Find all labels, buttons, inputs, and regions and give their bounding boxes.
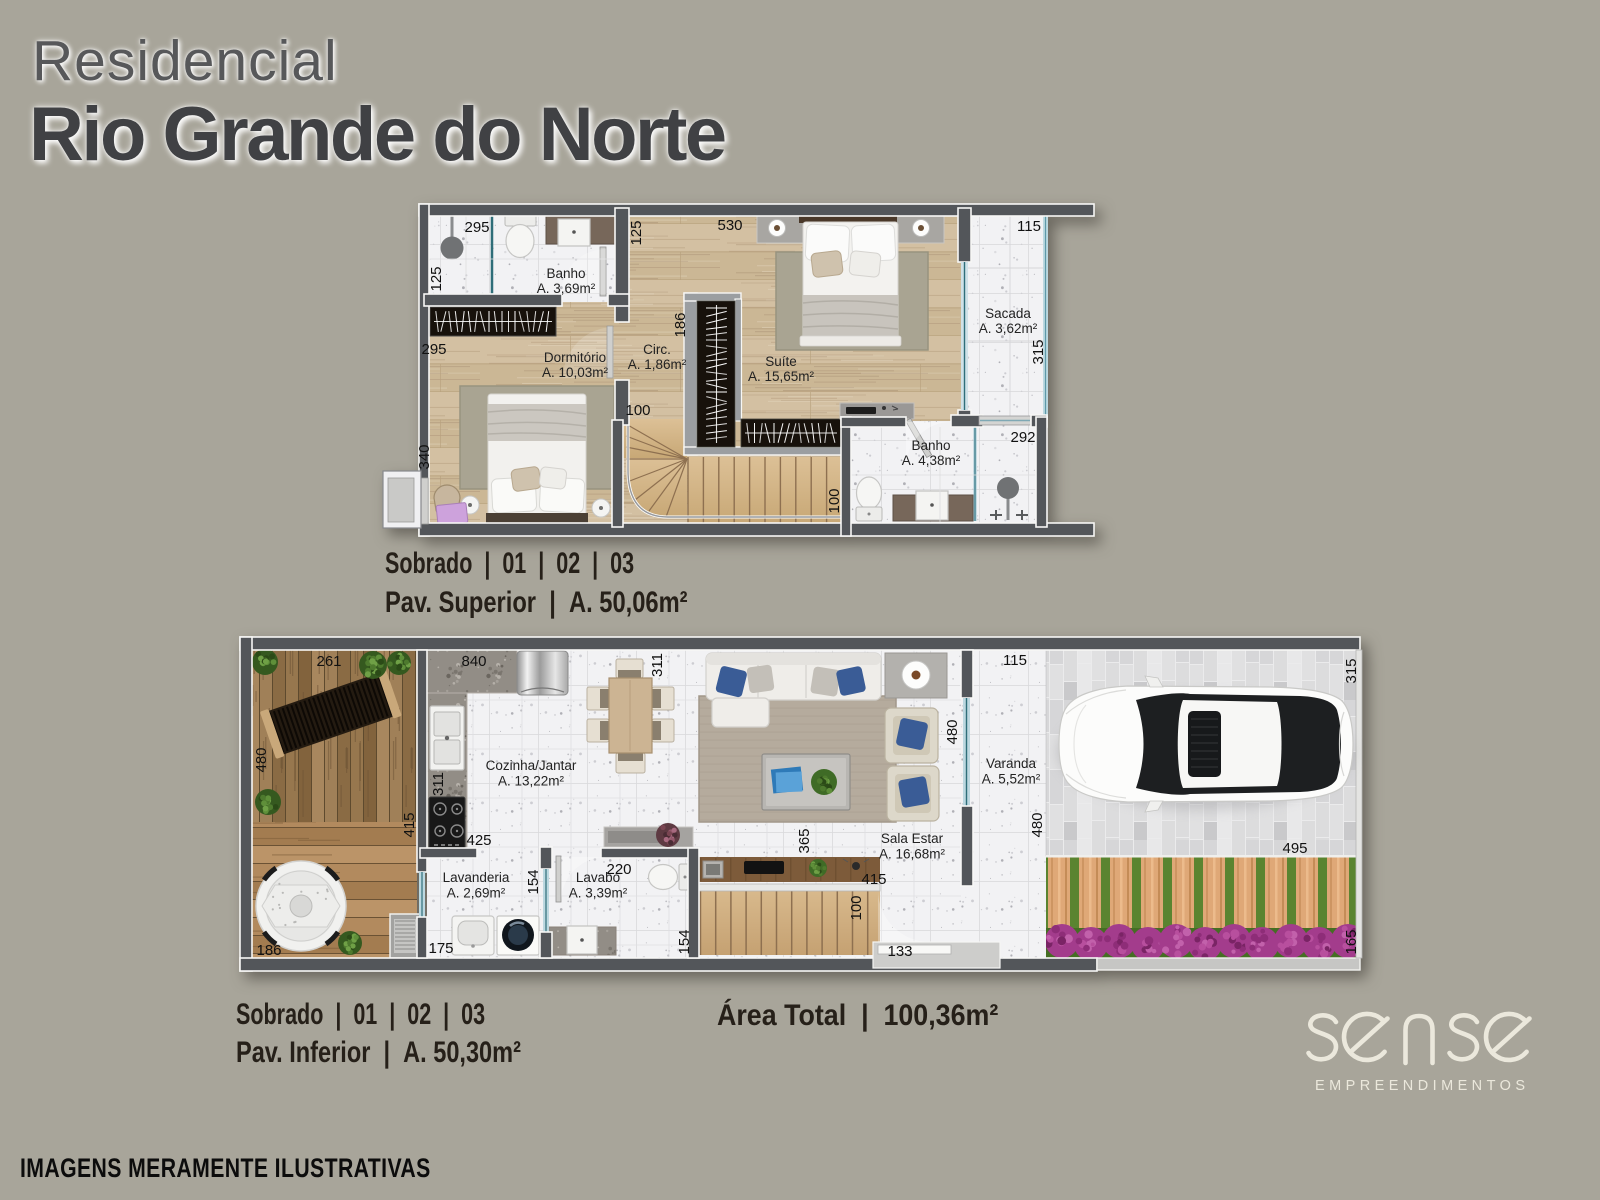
- svg-text:133: 133: [887, 943, 912, 960]
- svg-text:115: 115: [1003, 652, 1027, 669]
- svg-text:A. 3,69m²: A. 3,69m²: [537, 281, 596, 296]
- svg-text:A. 3,39m²: A. 3,39m²: [569, 886, 628, 901]
- svg-text:A. 10,03m²: A. 10,03m²: [542, 365, 609, 380]
- svg-text:100: 100: [826, 488, 843, 513]
- svg-text:Cozinha/Jantar: Cozinha/Jantar: [486, 758, 577, 773]
- svg-text:261: 261: [316, 653, 341, 670]
- svg-text:311: 311: [430, 772, 447, 796]
- svg-text:415: 415: [861, 871, 886, 888]
- svg-text:A. 5,52m²: A. 5,52m²: [982, 772, 1041, 787]
- svg-text:315: 315: [1030, 339, 1047, 364]
- svg-text:Dormitório: Dormitório: [544, 350, 606, 365]
- svg-text:165: 165: [1343, 929, 1360, 954]
- svg-text:840: 840: [461, 653, 486, 670]
- svg-text:480: 480: [253, 747, 270, 772]
- svg-text:480: 480: [1029, 812, 1046, 837]
- svg-text:125: 125: [428, 266, 445, 291]
- svg-text:Banho: Banho: [911, 438, 950, 453]
- svg-text:A. 1,86m²: A. 1,86m²: [628, 357, 687, 372]
- svg-text:Circ.: Circ.: [643, 342, 671, 357]
- svg-text:Sala Estar: Sala Estar: [881, 831, 944, 846]
- svg-text:100: 100: [848, 895, 865, 920]
- svg-text:425: 425: [466, 832, 491, 849]
- svg-text:A. 16,68m²: A. 16,68m²: [879, 847, 946, 862]
- svg-text:186: 186: [672, 312, 689, 337]
- svg-text:365: 365: [796, 828, 813, 853]
- svg-text:Banho: Banho: [546, 266, 585, 281]
- svg-text:415: 415: [401, 812, 418, 837]
- svg-text:100: 100: [625, 402, 650, 419]
- svg-text:Lavabo: Lavabo: [576, 870, 620, 885]
- svg-text:154: 154: [525, 869, 542, 894]
- svg-text:A. 3,62m²: A. 3,62m²: [979, 321, 1038, 336]
- svg-text:295: 295: [421, 341, 446, 358]
- svg-text:295: 295: [464, 219, 489, 236]
- svg-text:A. 13,22m²: A. 13,22m²: [498, 774, 565, 789]
- svg-text:A. 2,69m²: A. 2,69m²: [447, 886, 506, 901]
- svg-text:480: 480: [944, 719, 961, 744]
- svg-text:311: 311: [649, 653, 666, 677]
- svg-text:154: 154: [676, 929, 693, 954]
- svg-text:186: 186: [256, 942, 281, 959]
- svg-text:EMPREENDIMENTOS: EMPREENDIMENTOS: [1315, 1078, 1529, 1094]
- svg-text:495: 495: [1282, 840, 1307, 857]
- svg-text:115: 115: [1017, 218, 1041, 235]
- svg-text:340: 340: [416, 444, 433, 469]
- svg-text:Varanda: Varanda: [986, 756, 1037, 771]
- svg-text:Lavanderia: Lavanderia: [443, 870, 510, 885]
- svg-text:Suíte: Suíte: [765, 354, 797, 369]
- svg-text:292: 292: [1010, 429, 1035, 446]
- svg-text:A. 15,65m²: A. 15,65m²: [748, 369, 815, 384]
- svg-text:175: 175: [428, 940, 453, 957]
- svg-text:315: 315: [1343, 658, 1360, 683]
- svg-text:A. 4,38m²: A. 4,38m²: [902, 453, 961, 468]
- svg-text:Sacada: Sacada: [985, 306, 1031, 321]
- svg-text:530: 530: [717, 217, 742, 234]
- svg-text:125: 125: [628, 220, 645, 245]
